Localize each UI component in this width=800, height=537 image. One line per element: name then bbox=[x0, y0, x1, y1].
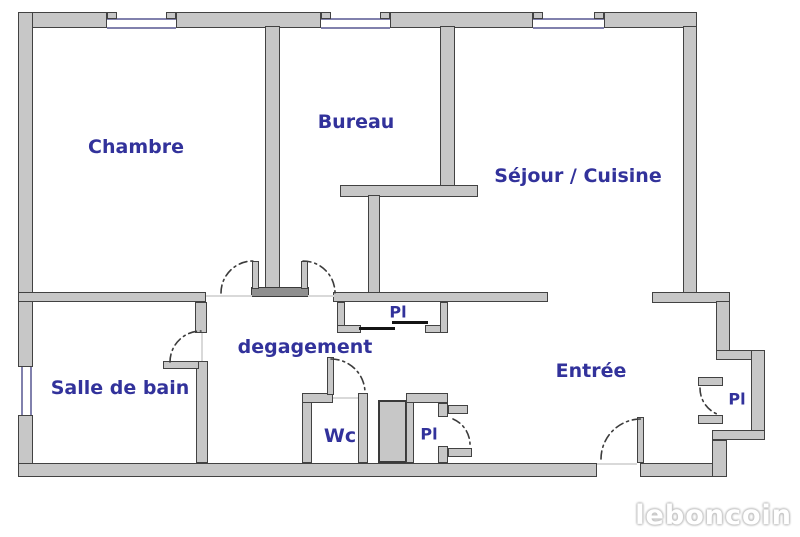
window-lintel-4 bbox=[380, 12, 390, 19]
closet-mid-door-stub-lower bbox=[448, 448, 472, 457]
wall-bathroom-door-stub bbox=[195, 302, 207, 333]
wall-right-lower bbox=[712, 440, 727, 477]
wall-hallway-right bbox=[333, 292, 548, 302]
wall-wc-right bbox=[358, 393, 368, 463]
closet-right-door-stub-lower bbox=[698, 415, 723, 424]
door-arc-entrance bbox=[601, 419, 641, 459]
wall-chambre-bureau-divider bbox=[265, 26, 280, 288]
room-label-chambre: Chambre bbox=[88, 136, 184, 158]
wall-bureau-sejour-divider bbox=[440, 26, 455, 195]
wall-right-middle bbox=[716, 301, 730, 353]
closet-right-outer-wall bbox=[751, 350, 765, 440]
closet-mid-left-wall bbox=[406, 393, 414, 463]
closet-mid-right-upper bbox=[438, 403, 448, 417]
room-label-entree: Entrée bbox=[556, 360, 627, 382]
closet-hall-slider-panel-1 bbox=[359, 327, 395, 330]
window-top-2 bbox=[321, 18, 390, 29]
wall-right-upper bbox=[683, 26, 697, 293]
window-lintel-2 bbox=[166, 12, 176, 19]
door-leaf-entrance bbox=[637, 417, 644, 463]
closet-label-entry-right: Pl bbox=[728, 390, 745, 409]
window-left-bathroom bbox=[21, 367, 32, 415]
threshold-bureau-door bbox=[308, 295, 334, 297]
door-leaf-wc bbox=[327, 357, 334, 395]
room-label-sejour-cuisine: Séjour / Cuisine bbox=[494, 165, 661, 187]
window-top-1 bbox=[107, 18, 176, 29]
closet-mid-top-wall bbox=[406, 393, 448, 403]
wall-sejour-spur bbox=[368, 195, 380, 298]
door-arc-closet-right bbox=[700, 388, 717, 414]
closet-mid-right-lower bbox=[438, 446, 448, 463]
closet-label-middle: Pl bbox=[420, 425, 437, 444]
room-label-wc: Wc bbox=[324, 425, 356, 447]
door-arc-wc bbox=[331, 359, 365, 393]
room-label-degagement: degagement bbox=[238, 336, 373, 358]
door-arc-bathroom bbox=[170, 331, 201, 362]
wall-hallway-left bbox=[18, 292, 206, 302]
wall-top-segment-3 bbox=[390, 12, 533, 28]
room-label-salle-de-bain: Salle de bain bbox=[51, 377, 190, 399]
watermark-leboncoin: leboncoin bbox=[635, 500, 792, 531]
door-arc-closet-mid bbox=[453, 419, 470, 445]
closet-label-hallway: Pl bbox=[389, 303, 406, 322]
door-leaf-chambre bbox=[252, 261, 259, 289]
closet-mid-door-stub-upper bbox=[448, 405, 468, 414]
closet-hall-right-wall bbox=[440, 302, 448, 333]
wall-wc-left bbox=[302, 393, 312, 463]
threshold-bathroom-door bbox=[201, 333, 203, 361]
closet-right-bottom-wall bbox=[712, 430, 765, 440]
door-leaf-bureau bbox=[301, 261, 308, 289]
wall-left-upper bbox=[18, 12, 33, 367]
wall-bottom-left bbox=[18, 463, 597, 477]
threshold-chambre-door bbox=[206, 295, 252, 297]
door-leaf-bathroom bbox=[163, 361, 199, 369]
window-lintel-6 bbox=[594, 12, 604, 19]
closet-hall-bottom-left bbox=[337, 325, 361, 333]
window-lintel-3 bbox=[321, 12, 331, 19]
window-lintel-5 bbox=[533, 12, 543, 19]
wall-bathroom-right bbox=[196, 361, 208, 463]
threshold-wc-door bbox=[333, 397, 358, 399]
utility-shaft bbox=[378, 400, 407, 463]
threshold-entrance-door bbox=[597, 463, 637, 465]
wall-top-segment-2 bbox=[176, 12, 321, 28]
window-lintel-1 bbox=[107, 12, 117, 19]
wall-bureau-bottom bbox=[340, 185, 478, 197]
closet-right-door-stub-upper bbox=[698, 377, 723, 386]
window-top-3 bbox=[533, 18, 604, 29]
floor-plan: Chambre Bureau Séjour / Cuisine Salle de… bbox=[0, 0, 800, 537]
room-label-bureau: Bureau bbox=[318, 111, 395, 133]
door-arc-chambre bbox=[221, 261, 253, 293]
